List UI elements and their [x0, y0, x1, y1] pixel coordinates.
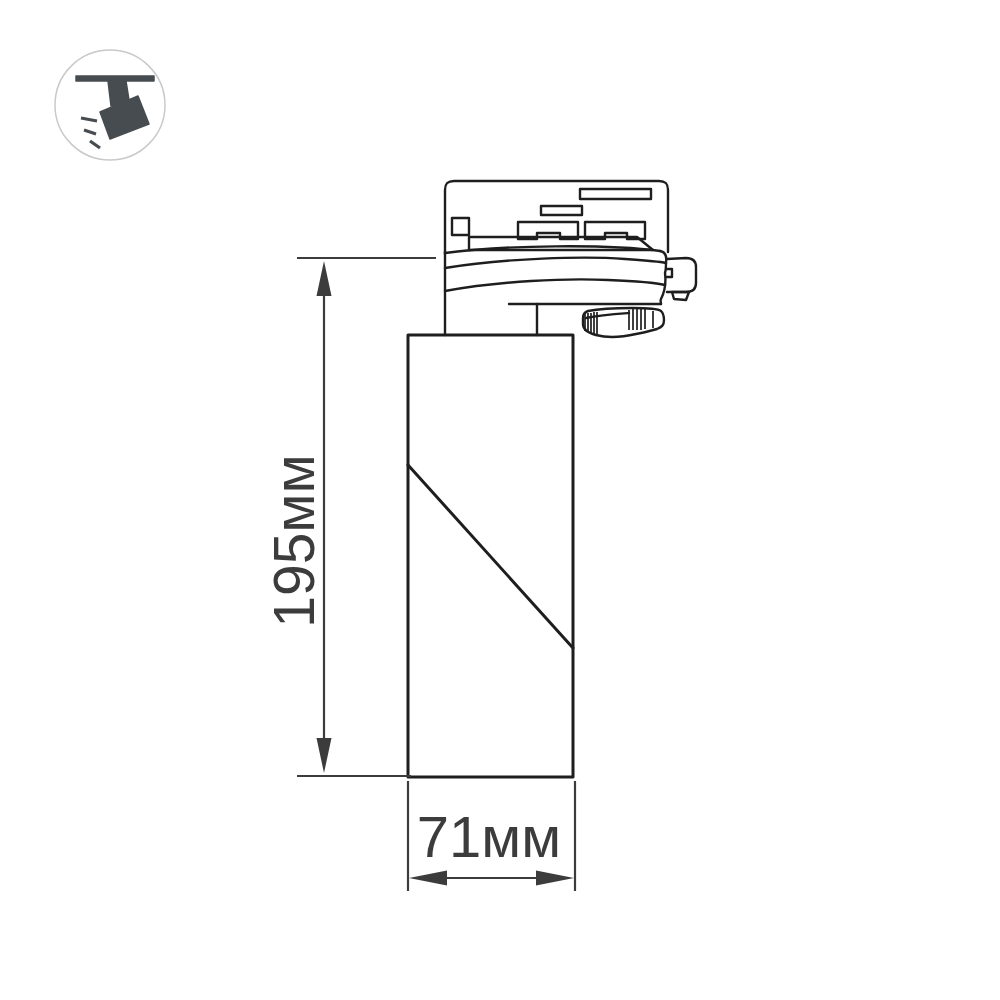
latch-foot	[672, 292, 689, 300]
track-spotlight-icon	[55, 50, 165, 160]
contact-square	[452, 218, 469, 235]
width-dimension-label: 71мм	[417, 804, 561, 869]
arrow-up-icon	[317, 261, 332, 296]
width-dimension: 71мм	[408, 781, 575, 891]
collar-ring-2	[445, 258, 666, 268]
contact-slot-mid	[541, 206, 582, 215]
height-dimension-label: 195мм	[262, 454, 326, 627]
arrow-down-icon	[317, 738, 332, 773]
body-seam-diagonal	[408, 465, 573, 648]
arrow-left-icon	[409, 871, 447, 886]
track-adapter	[445, 181, 696, 337]
latch-notch	[667, 269, 672, 277]
lamp-body	[408, 335, 573, 777]
contact-slot-long	[580, 189, 651, 199]
locking-knob	[583, 308, 664, 337]
contact-box-details	[452, 189, 653, 250]
adapter-latch	[667, 258, 696, 300]
badge-circle	[55, 50, 165, 160]
arrow-right-icon	[536, 871, 574, 886]
knob-hatch-right	[629, 309, 653, 330]
collar-right-edge	[660, 251, 666, 304]
adapter-contact-box	[445, 181, 668, 254]
spotlight-dimension-diagram: 195мм 71мм	[0, 0, 1000, 1000]
knob-inner-edge	[586, 313, 629, 318]
technical-drawing-page: 195мм 71мм	[0, 0, 1000, 1000]
collar-ring-3	[445, 279, 665, 291]
